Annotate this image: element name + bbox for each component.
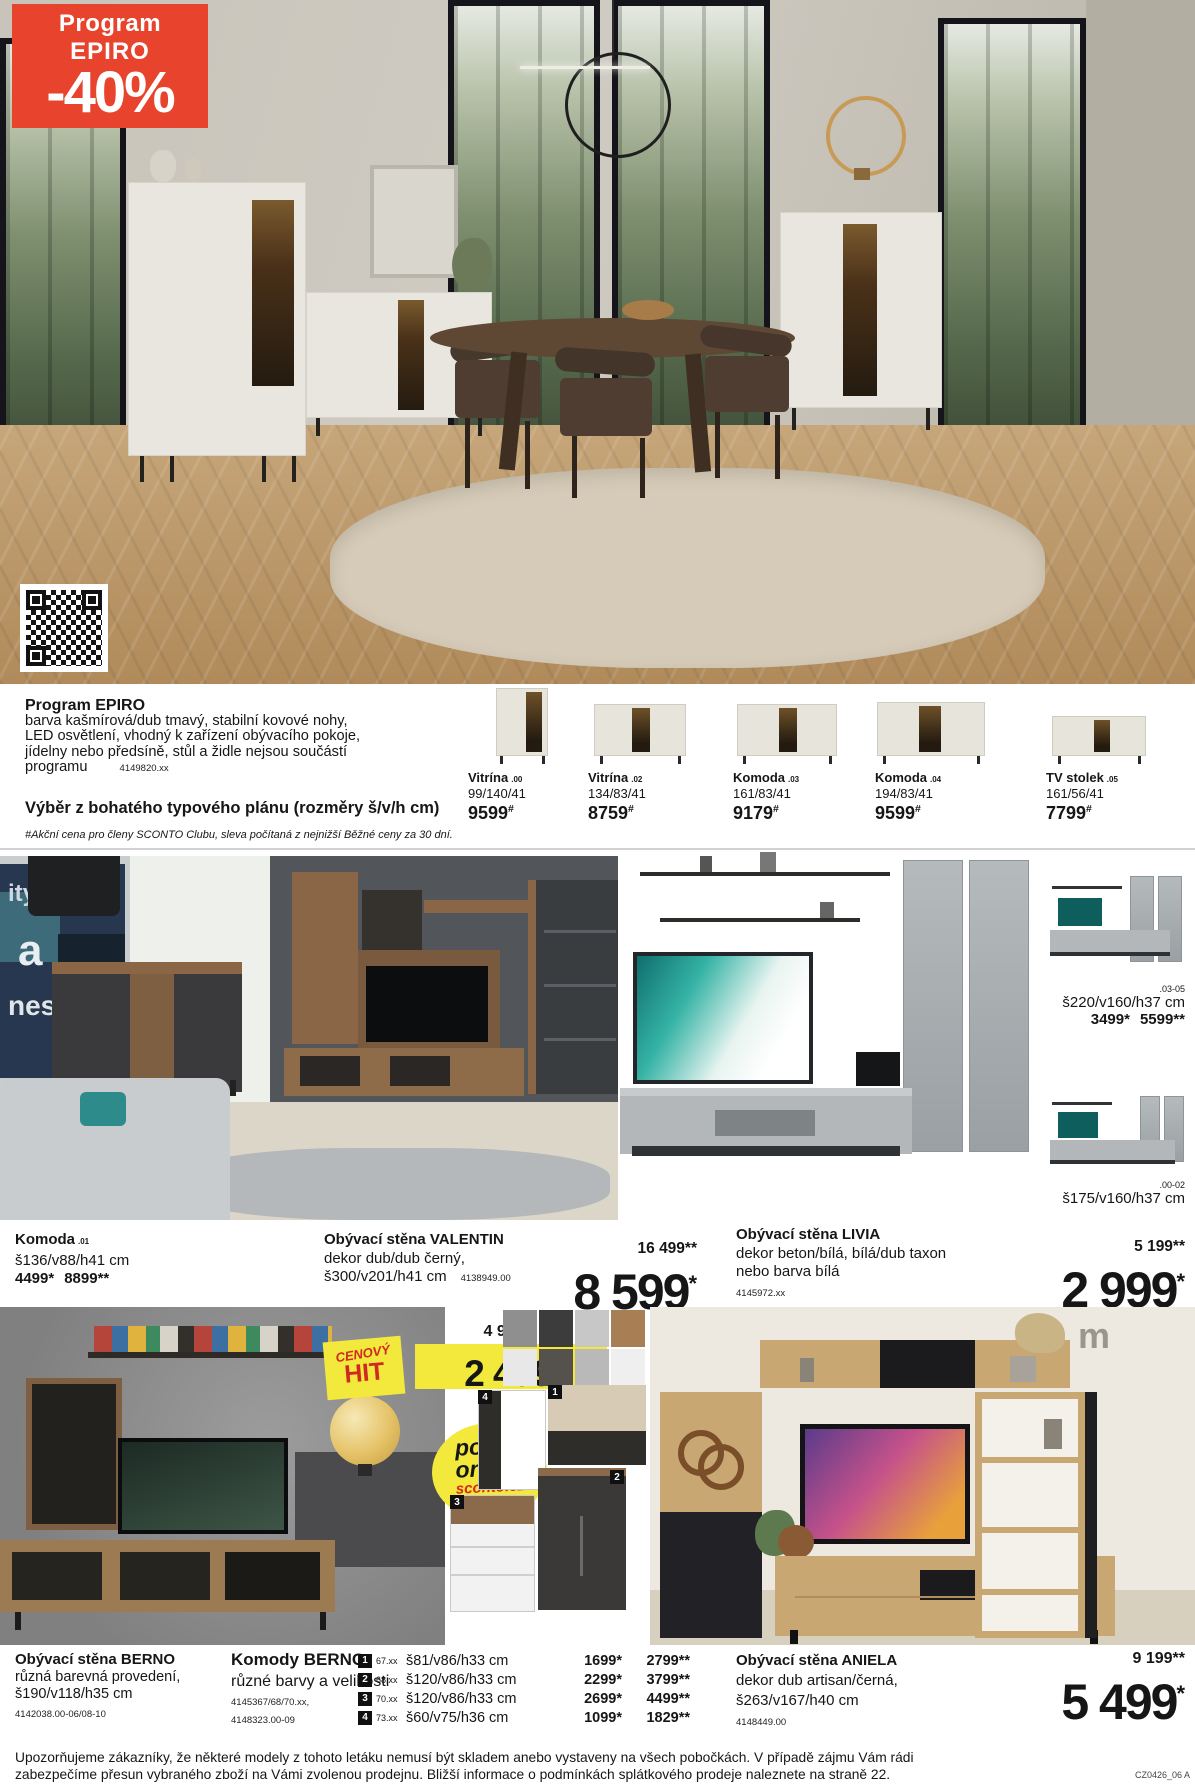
qr-code <box>20 584 108 672</box>
livia-variant-top-thumb <box>1048 874 1188 982</box>
knot-sculpture <box>778 1525 814 1559</box>
row-number: 2 <box>358 1673 372 1687</box>
valentin-info: Obývací stěna VALENTIN dekor dub/dub čer… <box>324 1231 511 1289</box>
collage-tag: 1 <box>548 1385 562 1399</box>
komoda-render-2 <box>538 1468 626 1610</box>
qr-finder <box>26 590 46 610</box>
aniela-room-photo: m <box>650 1307 1195 1645</box>
open-shelf-unit <box>975 1392 1085 1638</box>
price-old: 16 499** <box>500 1240 697 1258</box>
decor-letter-m: m <box>1078 1315 1110 1357</box>
price-current: 2 999* <box>988 1259 1185 1313</box>
lowboard <box>0 1540 335 1612</box>
discount-badge: Program EPIRO -40% <box>12 4 208 128</box>
wardrobe <box>26 1378 122 1530</box>
row-price-club: 1099* <box>564 1710 622 1726</box>
row-dims: š60/v75/h36 cm <box>406 1710 564 1726</box>
product-dims: 194/83/41 <box>875 786 991 801</box>
livia-variant-top-caption: .03-05 š220/v160/h37 cm 3499*5599** <box>1000 984 1185 1028</box>
row-dims: š120/v86/h33 cm <box>406 1672 564 1688</box>
desc-line: barva kašmírová/dub tmavý, stabilní kovo… <box>25 714 465 729</box>
komoda01-info: Komoda.01 š136/v88/h41 cm 4499*8899** <box>15 1231 129 1289</box>
lowboard-leg <box>320 1612 326 1630</box>
row-code: 73.xx <box>376 1713 406 1723</box>
product-desc: nebo barva bílá <box>736 1263 946 1282</box>
product-price: 9179# <box>733 803 849 824</box>
tall-cabinet <box>660 1392 762 1638</box>
shelf-decor <box>700 856 712 872</box>
tv-screen <box>366 966 488 1042</box>
livia-variant-bottom-thumb <box>1048 1094 1188 1178</box>
lowboard-leg <box>790 1630 798 1644</box>
product-price: 8759# <box>588 803 704 824</box>
livia-lowboard <box>620 1088 912 1154</box>
product-desc: dekor dub/dub černý, <box>324 1250 511 1269</box>
product-desc: dekor beton/bílá, bílá/dub taxon <box>736 1245 946 1264</box>
product-price: 9599# <box>875 803 991 824</box>
product-prices: 4499*8899** <box>15 1270 129 1289</box>
variant-code: .03-05 <box>1000 984 1185 994</box>
product-thumbnail <box>468 688 584 764</box>
dried-grass-decor <box>1015 1313 1065 1353</box>
row-price-club: 2299* <box>564 1672 622 1688</box>
lowboard-leg <box>15 1612 21 1630</box>
table-row: 2 68.xx š120/v86/h33 cm 2299* 3799** <box>358 1670 690 1689</box>
product-dims: 161/56/41 <box>1046 786 1162 801</box>
lowboard <box>284 1048 524 1096</box>
product-thumbnail <box>733 688 849 764</box>
product-thumbnail <box>588 688 704 764</box>
chair-leg <box>715 412 720 478</box>
row-code: 68.xx <box>376 1675 406 1685</box>
hero-photo: Program EPIRO -40% <box>0 0 1195 684</box>
plant-decor <box>452 238 492 292</box>
komoda-01-render <box>52 962 242 1092</box>
variant-dims: š175/v160/h37 cm <box>1000 1190 1185 1207</box>
product-dims: š190/v118/h35 cm <box>15 1686 180 1704</box>
product-name: Vitrína.02 <box>588 770 704 785</box>
program-product-col: Vitrína.02 134/83/41 8759# <box>588 688 704 824</box>
poster-frame <box>370 165 458 278</box>
globe-stand <box>358 1464 372 1476</box>
qr-finder <box>82 590 102 610</box>
valentin-price: 16 499** 8 599* <box>500 1240 697 1315</box>
variant-code: .00-02 <box>1000 1180 1185 1190</box>
product-dims: š263/v167/h40 cm <box>736 1691 898 1711</box>
gold-ring-lamp <box>826 96 906 176</box>
price-old: 9 199** <box>988 1650 1185 1668</box>
section-divider <box>0 848 1195 850</box>
chair-leg <box>465 418 470 488</box>
komoda-render-3 <box>450 1495 535 1612</box>
product-name: Komoda.04 <box>875 770 991 785</box>
desc-line: programu 4149820.xx <box>25 760 465 776</box>
product-desc: různá barevná provedení, <box>15 1669 180 1687</box>
collage-tag: 2 <box>610 1470 624 1484</box>
shelf-decor <box>820 902 834 918</box>
row-price-regular: 2799** <box>622 1653 690 1669</box>
vase-decor <box>150 150 176 182</box>
program-item-number: 4149820.xx <box>120 763 169 774</box>
row-dims: š81/v86/h33 cm <box>406 1653 564 1669</box>
product-thumbnail <box>1046 688 1162 764</box>
cabinet-leg <box>262 456 266 482</box>
komoda-render-1 <box>548 1385 646 1465</box>
chair-leg <box>572 436 577 498</box>
pendant-cord <box>612 0 614 58</box>
dining-chair <box>560 378 652 436</box>
product-price: 7799# <box>1046 803 1162 824</box>
teal-pillow <box>80 1092 126 1126</box>
program-subtitle: Výběr z bohatého typového plánu (rozměry… <box>25 799 439 818</box>
product-dims: š300/v201/h41 cm4138949.00 <box>324 1268 511 1289</box>
product-dims: 134/83/41 <box>588 786 704 801</box>
desc-line: LED osvětlení, vhodný k zařízení obývací… <box>25 729 465 744</box>
desc-line: jídelny nebo předsíně, stůl a židle nejs… <box>25 745 465 760</box>
sideboard-slot <box>398 300 424 410</box>
price-current: 5 499* <box>988 1671 1185 1725</box>
livia-lowboard-plinth <box>632 1146 900 1156</box>
product-dims: 161/83/41 <box>733 786 849 801</box>
aniela-info: Obývací stěna ANIELA dekor dub artisan/č… <box>736 1651 898 1733</box>
wall-unit-wood-panel <box>292 872 358 1044</box>
page-code: CZ0426_06 A <box>1135 1770 1190 1780</box>
cabinet-leg <box>926 408 930 430</box>
dining-chair <box>705 356 789 412</box>
product-name: Komoda.01 <box>15 1231 129 1252</box>
shelf-decor <box>760 852 776 872</box>
product-item-number: 4148449.00 <box>736 1713 898 1733</box>
tv-screen <box>800 1424 970 1544</box>
lamp-shade <box>28 856 120 916</box>
product-name: Obývací stěna VALENTIN <box>324 1231 511 1250</box>
row-code: 70.xx <box>376 1694 406 1704</box>
desc-line-last: programu <box>25 759 87 775</box>
program-product-col: Komoda.03 161/83/41 9179# <box>733 688 849 824</box>
cabinet-leg <box>140 456 144 482</box>
gold-ring-lamp-base <box>854 168 870 180</box>
berno-komody-table: 1 67.xx š81/v86/h33 cm 1699* 2799** 2 68… <box>358 1651 690 1727</box>
row-number: 4 <box>358 1711 372 1725</box>
berno-wall-info: Obývací stěna BERNO různá barevná proved… <box>15 1651 180 1723</box>
qr-pattern <box>26 590 102 666</box>
product-name: Obývací stěna ANIELA <box>736 1651 898 1671</box>
book-row <box>94 1326 332 1352</box>
product-dims: 99/140/41 <box>468 786 584 801</box>
program-description: barva kašmírová/dub tmavý, stabilní kovo… <box>25 714 465 777</box>
collage-tag: 4 <box>478 1390 492 1404</box>
livia-speaker <box>856 1052 900 1086</box>
cabinet-leg <box>292 456 296 482</box>
livia-info: Obývací stěna LIVIA dekor beton/bílá, bí… <box>736 1226 946 1303</box>
product-name: Vitrína.00 <box>468 770 584 785</box>
door-front-grid <box>503 1310 645 1386</box>
variant-prices: 3499*5599** <box>1000 1011 1185 1028</box>
row-number: 3 <box>358 1692 372 1706</box>
row-price-club: 2699* <box>564 1691 622 1707</box>
dining-chair <box>455 360 540 418</box>
rug <box>330 468 1045 668</box>
livia-variant-bottom-caption: .00-02 š175/v160/h37 cm <box>1000 1180 1185 1207</box>
vase-decor <box>185 158 201 182</box>
tall-cabinet-open-shelf <box>252 200 294 386</box>
product-name: Obývací stěna BERNO <box>15 1651 180 1669</box>
footer-line1: Upozorňujeme zákazníky, že některé model… <box>15 1749 1140 1766</box>
product-price: 9599# <box>468 803 584 824</box>
window-right <box>938 18 1086 458</box>
poster-letters: a <box>18 926 42 976</box>
product-name: Obývací stěna LIVIA <box>736 1226 946 1245</box>
variant-dims: š220/v160/h37 cm <box>1000 994 1185 1011</box>
program-product-col: Vitrína.00 99/140/41 9599# <box>468 688 584 824</box>
row-price-regular: 4499** <box>622 1691 690 1707</box>
club-price-note: #Akční cena pro členy SCONTO Clubu, slev… <box>25 829 453 841</box>
bookcase <box>528 880 618 1094</box>
row-price-regular: 3799** <box>622 1672 690 1688</box>
tv-screen <box>118 1438 288 1534</box>
product-name: Komoda.03 <box>733 770 849 785</box>
flyer-page: Program EPIRO -40% Program EPIRO barva k… <box>0 0 1195 1787</box>
row-price-club: 1699* <box>564 1653 622 1669</box>
livia-concrete-slab <box>903 860 963 1152</box>
product-thumbnail <box>875 688 991 764</box>
table-row: 4 73.xx š60/v75/h36 cm 1099* 1829** <box>358 1708 690 1727</box>
chair-leg <box>775 415 780 479</box>
shelf-side-panel <box>1085 1392 1097 1638</box>
poster-letters: nes <box>8 990 56 1022</box>
badge-discount: -40% <box>12 66 208 120</box>
chair-leg <box>525 421 530 489</box>
table-row: 3 70.xx š120/v86/h33 cm 2699* 4499** <box>358 1689 690 1708</box>
chair-leg <box>640 438 645 498</box>
row-number: 1 <box>358 1654 372 1668</box>
cabinet-leg <box>170 456 174 482</box>
livia-price: 5 199** 2 999* <box>988 1238 1185 1313</box>
aniela-price: 9 199** 5 499* <box>988 1650 1185 1725</box>
led-light-bar <box>520 66 650 69</box>
cenovy-hit-badge: CENOVÝ HIT <box>323 1336 406 1401</box>
row-dims: š120/v86/h33 cm <box>406 1691 564 1707</box>
komoda-render-4 <box>478 1390 546 1490</box>
program-product-col: TV stolek.05 161/56/41 7799# <box>1046 688 1162 824</box>
footer-line2: zabezpečíme přesun vybraného zboží na Vá… <box>15 1766 1140 1783</box>
table-row: 1 67.xx š81/v86/h33 cm 1699* 2799** <box>358 1651 690 1670</box>
price-old: 5 199** <box>988 1238 1185 1256</box>
product-desc: dekor dub artisan/černá, <box>736 1671 898 1691</box>
komoda-leg <box>230 1080 236 1096</box>
cabinet-leg <box>316 418 320 436</box>
berno-komody-collage: 4 1 3 2 <box>445 1307 650 1645</box>
product-name: TV stolek.05 <box>1046 770 1162 785</box>
row-price-regular: 1829** <box>622 1710 690 1726</box>
product-item-number: 4142038.00-06/08-10 <box>15 1706 180 1724</box>
row-code: 67.xx <box>376 1656 406 1666</box>
footer-disclaimer: Upozorňujeme zákazníky, že některé model… <box>15 1749 1140 1783</box>
cabinet-leg <box>792 408 796 430</box>
table-bowl-decor <box>622 300 674 320</box>
cabinet-leg <box>478 418 482 436</box>
product-item-number: 4145972.xx <box>736 1285 946 1304</box>
badge-line1: Program <box>12 10 208 38</box>
area-rug <box>180 1148 610 1220</box>
valentin-room-photo: ity a nes <box>0 856 618 1220</box>
livia-wall-shelf <box>640 872 890 876</box>
program-product-col: Komoda.04 194/83/41 9599# <box>875 688 991 824</box>
wall-shelf <box>88 1352 338 1358</box>
collage-tag: 3 <box>450 1495 464 1509</box>
livia-tv-art <box>633 952 813 1084</box>
qr-finder <box>26 646 46 666</box>
livia-wall-shelf <box>660 918 860 922</box>
display-cabinet-glass <box>843 224 877 396</box>
globe-decor <box>330 1396 400 1466</box>
product-dims: š136/v88/h41 cm <box>15 1252 129 1271</box>
